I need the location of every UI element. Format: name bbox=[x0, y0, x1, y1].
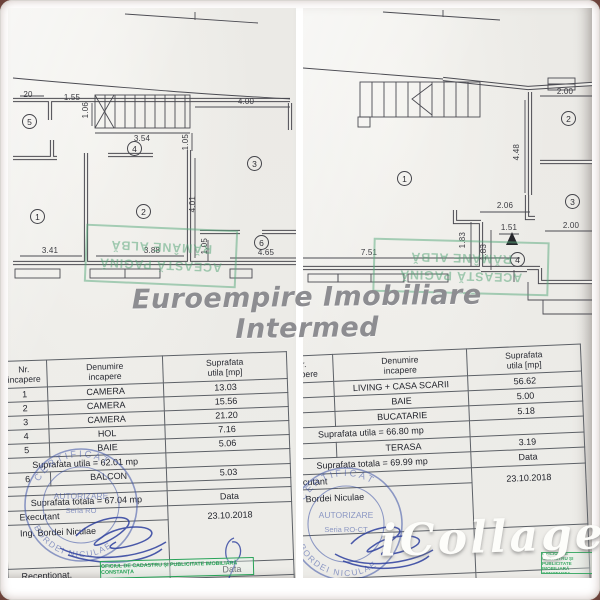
dimension-label: 20 bbox=[12, 90, 44, 99]
room-number-2: 2 bbox=[136, 204, 151, 219]
room-number-5: 5 bbox=[22, 114, 37, 129]
dimension-label: 2.06 bbox=[489, 201, 521, 210]
dimension-label: 4.00 bbox=[230, 97, 262, 106]
blank-page-stamp: ACEASTĂ PAGINĂ RĂMÂNE ALBĂ bbox=[84, 224, 238, 289]
room-number-1: 1 bbox=[30, 209, 45, 224]
dimension-label: 1.05 bbox=[181, 134, 190, 150]
dimension-label: 3.41 bbox=[34, 246, 66, 255]
dimension-label: 2.00 bbox=[555, 221, 587, 230]
dimension-label: 1.06 bbox=[81, 102, 90, 118]
svg-text:CERTIFICAT: CERTIFICAT bbox=[303, 468, 377, 503]
dimension-label: 1.51 bbox=[493, 223, 525, 232]
table-header-nr: Nr. incapere bbox=[303, 354, 334, 384]
room-number-6: 6 bbox=[254, 235, 269, 250]
table-header-name: Denumire incapere bbox=[46, 356, 163, 387]
photo-collage-frame: 20 1.55 1.06 3.54 4.00 1.05 4.01 3.41 3.… bbox=[0, 0, 600, 600]
room-number-3: 3 bbox=[247, 156, 262, 171]
dimension-label: 4.65 bbox=[250, 248, 282, 257]
room-number-2: 2 bbox=[561, 111, 576, 126]
room-number-4: 4 bbox=[127, 141, 142, 156]
dimension-label: 4.48 bbox=[512, 144, 521, 160]
dimension-label: 2.00 bbox=[549, 87, 581, 96]
icollage-watermark: iCollage bbox=[379, 508, 600, 567]
agency-watermark: Euroempire Imobiliare Intermed bbox=[92, 279, 523, 347]
room-number-3: 3 bbox=[565, 194, 580, 209]
cadastre-office-stamp-text: OFICIUL DE CADASTRU ȘI PUBLICITATE IMOBI… bbox=[101, 560, 253, 576]
table-header-nr: Nr. incapere bbox=[8, 360, 47, 389]
svg-text:CERTIFICAT: CERTIFICAT bbox=[32, 449, 112, 484]
blank-page-stamp-line2: RĂMÂNE ALBĂ bbox=[410, 248, 512, 269]
cadastre-office-stamp: OFICIUL DE CADASTRU ȘI PUBLICITATE IMOBI… bbox=[100, 557, 254, 578]
room-number-1: 1 bbox=[397, 171, 412, 186]
signature bbox=[46, 500, 178, 566]
dimension-label: 1.55 bbox=[56, 93, 88, 102]
dimension-label: 4.01 bbox=[188, 196, 197, 212]
